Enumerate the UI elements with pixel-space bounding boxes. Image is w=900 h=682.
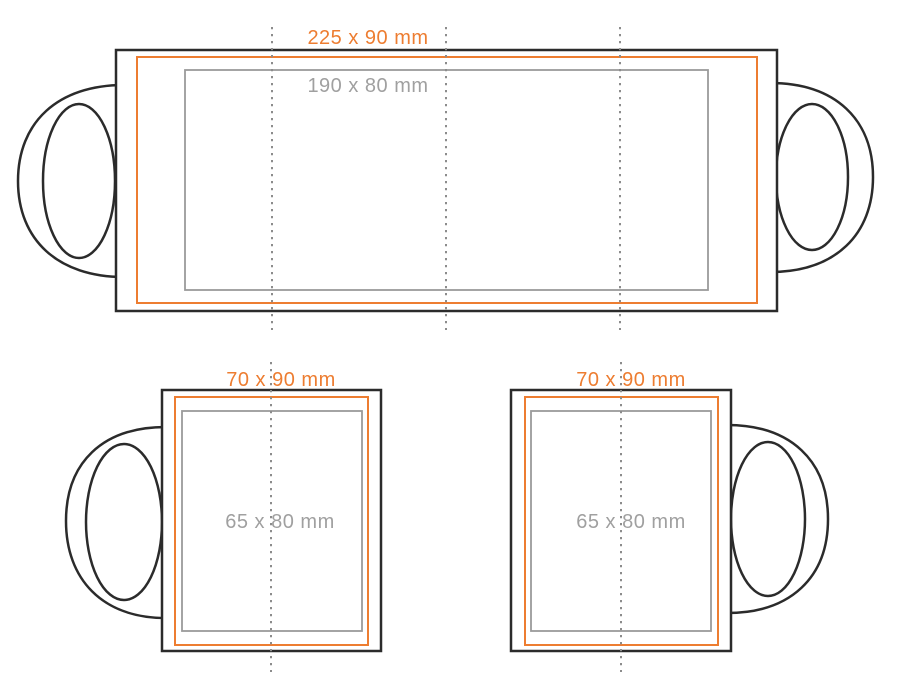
large-mug-body bbox=[116, 50, 777, 311]
small-right-mug: 70 x 90 mm 65 x 80 mm bbox=[511, 362, 828, 672]
small-left-mug: 70 x 90 mm 65 x 80 mm bbox=[66, 362, 381, 672]
large-mug-right-handle-hole bbox=[776, 104, 848, 250]
mug-print-template-diagram: 225 x 90 mm 190 x 80 mm 70 x 90 mm 65 x … bbox=[0, 0, 900, 682]
large-mug: 225 x 90 mm 190 x 80 mm bbox=[18, 27, 873, 330]
small-right-mug-safe-size-label: 65 x 80 mm bbox=[576, 511, 685, 533]
small-left-mug-handle-hole bbox=[86, 444, 162, 600]
large-mug-left-handle-hole bbox=[43, 104, 115, 258]
diagram-svg: 225 x 90 mm 190 x 80 mm 70 x 90 mm 65 x … bbox=[0, 0, 900, 682]
small-left-mug-print-size-label: 70 x 90 mm bbox=[226, 369, 335, 391]
small-right-mug-handle-hole bbox=[731, 442, 805, 596]
small-right-mug-print-size-label: 70 x 90 mm bbox=[576, 369, 685, 391]
large-mug-safe-size-label: 190 x 80 mm bbox=[307, 75, 428, 97]
large-mug-print-size-label: 225 x 90 mm bbox=[307, 27, 428, 49]
small-left-mug-safe-size-label: 65 x 80 mm bbox=[225, 511, 334, 533]
